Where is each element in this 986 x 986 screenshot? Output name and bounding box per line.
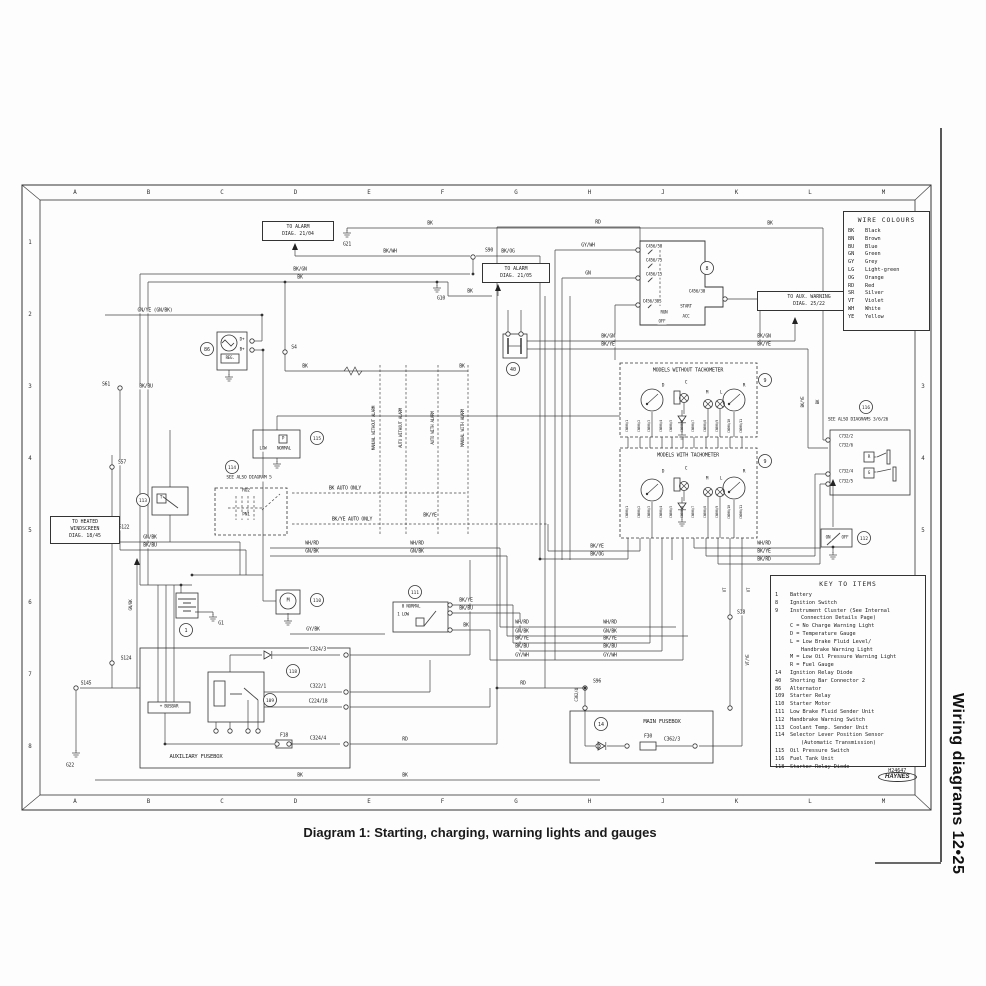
wire-label: VT	[723, 587, 727, 593]
connector-pin	[344, 653, 348, 657]
wire-label: S145	[80, 681, 93, 686]
wire-label: AUXILIARY FUSEBOX	[169, 754, 224, 760]
connector-pin	[214, 729, 218, 733]
grid-column-letter: H	[588, 799, 592, 805]
grid-column-letter: M	[882, 799, 886, 805]
grid-row-number: 6	[28, 600, 32, 606]
wire-colour-row: RDRed	[848, 283, 925, 291]
grid-row-number: 3	[921, 384, 925, 390]
junction-dot	[164, 743, 167, 746]
item-number: 40	[510, 367, 516, 373]
wire-label: WH/RD	[409, 541, 424, 546]
connector-pin	[636, 303, 640, 307]
item-number: 8	[705, 266, 708, 272]
wire-label: BK/YE	[514, 636, 529, 641]
wire-label: B+	[239, 348, 246, 353]
note-line: TO HEATED	[53, 519, 117, 526]
wire-label: S96	[592, 679, 602, 684]
wire-label: RO2	[241, 490, 251, 495]
grid-row-number: 4	[921, 456, 925, 462]
item-number: 112	[860, 536, 868, 542]
wire-label: BK/BU	[138, 384, 153, 389]
wire-label: C324/3	[309, 647, 327, 652]
key-item-row: 113Coolant Temp. Sender Unit	[775, 725, 921, 733]
wire-label: RD	[519, 681, 526, 686]
grid-column-letter: H	[588, 190, 592, 196]
wire-colours-legend: WIRE COLOURS BKBlackBNBrownBUBlueGNGreen…	[843, 211, 930, 331]
key-to-items-title: KEY TO ITEMS	[775, 581, 921, 588]
wire-label: BK	[401, 773, 408, 778]
wire-colour-row: WHWhite	[848, 306, 925, 314]
wire-label: C8006/3	[648, 419, 652, 433]
connector-pin	[583, 706, 587, 710]
connector-pin	[250, 348, 254, 352]
wire-label: MANUAL WITH ALARM	[461, 408, 465, 448]
wire-colour-row: BKBlack	[848, 228, 925, 236]
connector-pin	[275, 742, 279, 746]
resistor-icon	[674, 478, 680, 491]
wire-label: S90	[484, 248, 494, 253]
wire-label: GY/WH	[580, 243, 595, 248]
wire-label: RD	[401, 737, 408, 742]
wire-colour-row: LGLight-green	[848, 267, 925, 275]
wire-label: RUN	[660, 311, 669, 316]
grid-column-letter: C	[220, 799, 224, 805]
key-item-row: Connection Details Page)	[775, 615, 921, 623]
wire-label: RD	[594, 220, 601, 225]
connector-pin	[728, 615, 732, 619]
diagram-caption: Diagram 1: Starting, charging, warning l…	[0, 825, 960, 840]
wire-label: F18	[279, 733, 289, 738]
wire-label: C8006/8	[704, 419, 708, 433]
connector-pin	[250, 339, 254, 343]
component-box	[620, 448, 757, 538]
wire-label: G21	[342, 242, 352, 247]
component-box	[176, 593, 198, 618]
connector-pin	[287, 742, 291, 746]
grid-row-number: 3	[28, 384, 32, 390]
wire-label: BK AUTO ONLY	[328, 486, 362, 491]
wire-label: BK/BU	[458, 606, 473, 611]
component-box	[215, 488, 287, 535]
wire-label: BK/YE	[756, 549, 771, 554]
brand-logo: HAYNES	[878, 772, 917, 782]
wire-label: C8006/6	[681, 505, 685, 519]
wire-label: GY/WH	[602, 653, 617, 658]
connector-pin	[74, 686, 78, 690]
wire-label: GY/BK	[305, 627, 320, 632]
wiring-diagram-page: 8611311511411111011091181489940116112 BK…	[0, 0, 986, 986]
grid-column-letter: A	[73, 799, 77, 805]
wire-label: AUTO WITHOUT ALARM	[399, 407, 403, 449]
wire-colour-row: SRSilver	[848, 290, 925, 298]
wire-label: C362/4	[575, 687, 579, 702]
wire-colour-row: YEYellow	[848, 314, 925, 322]
key-item-row: 86Alternator	[775, 686, 921, 694]
wire-colours-rows: BKBlackBNBrownBUBlueGNGreenGYGreyLGLight…	[848, 228, 925, 322]
wire-label: MANUAL WITHOUT ALARM	[372, 405, 376, 451]
wire-label: G10	[436, 296, 446, 301]
wire-label: WH/RD	[602, 620, 617, 625]
grid-column-letter: M	[882, 190, 886, 196]
wire-label: BK	[766, 221, 773, 226]
wire-label: S18	[736, 610, 746, 615]
wire-label: C456/30	[688, 290, 706, 295]
grid-row-number: 7	[28, 672, 32, 678]
wire-colour-row: GNGreen	[848, 251, 925, 259]
item-number: 9	[763, 459, 766, 465]
connector-pin	[344, 705, 348, 709]
wire-label: SEE ALSO DIAGRAMS 3/6/26	[827, 419, 889, 424]
key-item-row: 14Ignition Relay Diode	[775, 670, 921, 678]
wire-label: REG.	[225, 356, 236, 360]
key-item-row: 110Starter Motor	[775, 701, 921, 709]
grid-column-letter: B	[147, 190, 151, 196]
connector-pin	[448, 611, 452, 615]
wire-label: BK/BU	[602, 644, 617, 649]
component-box	[208, 672, 264, 722]
wire-label: C8006/6	[681, 419, 685, 433]
wire-label: GN/YE (GN/BK)	[137, 308, 174, 313]
wire-label: S4	[290, 345, 297, 350]
wire-label: NORMAL	[276, 447, 292, 452]
wire-label: F30	[643, 734, 653, 739]
grid-column-letter: C	[220, 190, 224, 196]
grid-column-letter: L	[808, 190, 812, 196]
connector-pin	[826, 482, 830, 486]
key-item-row: (Automatic Transmission)	[775, 740, 921, 748]
component-box	[416, 618, 424, 626]
wire-label: R	[867, 455, 871, 459]
component-box	[830, 430, 910, 495]
key-item-row: R = Fuel Gauge	[775, 662, 921, 670]
wire-label: BK/YE	[589, 544, 604, 549]
wire-label: BK	[462, 623, 469, 628]
wire-label: C8006/2	[638, 505, 642, 519]
wire-label: BK/OG	[589, 552, 604, 557]
wire-label: D	[661, 385, 666, 390]
grid-row-number: 5	[921, 528, 925, 534]
wire-colour-row: GYGrey	[848, 259, 925, 267]
wire-label: R	[742, 471, 747, 476]
connector-pin	[448, 628, 452, 632]
wire-label: BK/BU	[514, 644, 529, 649]
wire-label: C8006/4	[660, 419, 664, 433]
wire-label: G1	[217, 621, 224, 626]
wire-label: C324/4	[309, 736, 327, 741]
wire-label: C8006/5	[670, 505, 674, 519]
wire-label: BK/YE	[801, 395, 805, 408]
wire-label: C8006/2	[638, 419, 642, 433]
gauge-icon	[723, 477, 745, 499]
key-to-items-rows: 1Battery8Ignition Switch9Instrument Clus…	[775, 592, 921, 771]
wire-label: BK/GN	[756, 334, 771, 339]
key-item-row: 40Shorting Bar Connector 2	[775, 678, 921, 686]
grid-column-letter: J	[661, 190, 665, 196]
wire-label: C8006/11	[740, 418, 744, 434]
wire-colour-row: VTViolet	[848, 298, 925, 306]
wire-label: BK/GN	[292, 267, 307, 272]
wire-label: L	[719, 477, 723, 482]
wire-label: BK	[296, 275, 303, 280]
component-box	[253, 430, 300, 458]
wire-label: 0 NORMAL	[401, 605, 422, 610]
wire-label: C8006/7	[692, 505, 696, 519]
connector-pin	[625, 744, 629, 748]
wire-label: C8006/10	[728, 504, 732, 520]
connector-pin	[118, 386, 122, 390]
wire-label: WH/RD	[756, 541, 771, 546]
grid-row-number: 2	[28, 312, 32, 318]
note-box: TO ALARMDIAG. 21/04	[262, 221, 334, 241]
note-line: DIAG. 21/05	[485, 273, 547, 280]
grid-column-letter: L	[808, 799, 812, 805]
gauge-icon	[641, 389, 663, 411]
wire-label: C732/5	[838, 480, 854, 485]
wire-label: PN1	[241, 514, 251, 519]
wire-label: BK	[301, 364, 308, 369]
item-number: 14	[598, 722, 604, 728]
grid-column-letter: A	[73, 190, 77, 196]
key-item-row: 8Ignition Switch	[775, 600, 921, 608]
wire-label: S124	[120, 656, 133, 661]
key-item-row: M = Low Oil Pressure Warning Light	[775, 654, 921, 662]
wire-label: C8006/8	[704, 505, 708, 519]
wire-label: S57	[117, 460, 127, 465]
note-line: WINDSCREEN	[53, 526, 117, 533]
grid-column-letter: G	[514, 190, 518, 196]
wire-colour-row: OGOrange	[848, 275, 925, 283]
wire-label: START	[679, 305, 693, 310]
grid-row-number: 4	[28, 456, 32, 462]
key-item-row: 111Low Brake Fluid Sender Unit	[775, 709, 921, 717]
connector-pin	[110, 661, 114, 665]
wire-label: BK/YE	[756, 342, 771, 347]
wire-label: C456/30S	[642, 300, 663, 305]
wire-label: S61	[101, 382, 111, 387]
resistor-icon	[674, 391, 680, 404]
wire-label: P	[281, 437, 285, 442]
wire-label: BK	[458, 364, 465, 369]
key-item-row: Handbrake Warning Light	[775, 647, 921, 655]
wire-label: C732/6	[838, 444, 854, 449]
wire-label: C8006/3	[648, 505, 652, 519]
wire-label: L	[719, 391, 723, 396]
note-line: TO ALARM	[265, 224, 331, 231]
key-to-items-legend: KEY TO ITEMS 1Battery8Ignition Switch9In…	[770, 575, 926, 767]
wire-label: WH/RD	[304, 541, 319, 546]
wire-label: LOW	[259, 447, 268, 452]
note-line: TO ALARM	[485, 266, 547, 273]
wire-label: BK/WH	[382, 249, 397, 254]
wire-label: BK	[426, 221, 433, 226]
connector-pin	[448, 603, 452, 607]
junction-dot	[539, 558, 542, 561]
wire-label: C8006/11	[740, 504, 744, 520]
wire-label: C322/1	[309, 684, 327, 689]
junction-dot	[261, 314, 264, 317]
note-line: DIAG. 18/45	[53, 533, 117, 540]
wire-label: C456/75	[645, 259, 663, 264]
item-number: 9	[763, 378, 766, 384]
grid-column-letter: D	[294, 799, 298, 805]
wire-label: GN/BK	[142, 535, 157, 540]
junction-dot	[496, 687, 499, 690]
wire-label: SEE ALSO DIAGRAM 5	[225, 477, 272, 482]
junction-dot	[262, 349, 265, 352]
junction-dot	[472, 273, 475, 276]
sidebar-page-label: Wiring diagrams 12•25	[948, 693, 966, 874]
grid-row-number: 1	[28, 240, 32, 246]
wire-label: AUTO WITH ALARM	[431, 410, 435, 445]
item-number: 113	[139, 498, 147, 504]
grid-column-letter: F	[441, 190, 445, 196]
wire-label: C456/50	[645, 245, 663, 250]
wire-label: GN/BK	[304, 549, 319, 554]
grid-column-letter: K	[735, 190, 739, 196]
wire-label: BK/RD	[756, 557, 771, 562]
ignition-switch-outline	[640, 241, 723, 325]
wire-label: C8006/4	[660, 505, 664, 519]
connector-pin	[723, 297, 727, 301]
wire-label: C732/2	[838, 435, 854, 440]
wire-colour-row: BUBlue	[848, 244, 925, 252]
wire-label: T	[159, 496, 163, 501]
note-box: TO ALARMDIAG. 21/05	[482, 263, 550, 283]
key-item-row: D = Temperature Gauge	[775, 631, 921, 639]
wire-label: BK	[296, 773, 303, 778]
wire-label: BK	[466, 289, 473, 294]
direction-arrow	[495, 284, 501, 291]
wire-label: C	[684, 382, 689, 387]
item-number: 111	[411, 590, 419, 596]
wire-label: BK/YE	[458, 598, 473, 603]
junction-dot	[436, 281, 439, 284]
wire-label: BK/YE AUTO ONLY	[331, 517, 373, 522]
junction-dot	[832, 546, 835, 549]
wire-label: C8006/7	[692, 419, 696, 433]
wire-label: C456/15	[645, 273, 663, 278]
wire-label: GN/BK	[409, 549, 424, 554]
component-box	[893, 467, 896, 481]
connector-pin	[246, 729, 250, 733]
wire-colour-row: BNBrown	[848, 236, 925, 244]
wire-label: C362/3	[663, 737, 681, 742]
connector-pin	[344, 690, 348, 694]
wire-label: BK/YE	[600, 342, 615, 347]
wire-label: BK/OG	[500, 249, 515, 254]
grid-column-letter: K	[735, 799, 739, 805]
wire-label: C224/18	[308, 699, 329, 704]
item-number: 116	[862, 405, 870, 411]
key-item-row: 109Starter Relay	[775, 693, 921, 701]
wire-label: C732/4	[838, 470, 854, 475]
grid-column-letter: E	[367, 799, 371, 805]
wire-label: OFF	[841, 536, 850, 541]
alternator-icon	[221, 335, 237, 351]
grid-column-letter: B	[147, 799, 151, 805]
note-box: TO HEATEDWINDSCREENDIAG. 18/45	[50, 516, 120, 544]
key-item-row: L = Low Brake Fluid Level/	[775, 639, 921, 647]
wire-label: C8006/1	[626, 505, 630, 519]
wire-label: MODELS WITH TACHOMETER	[656, 453, 720, 459]
junction-dot	[180, 584, 183, 587]
component-box	[887, 450, 890, 464]
wire-label: BK/YE	[602, 636, 617, 641]
key-item-row: 116Fuel Tank Unit	[775, 756, 921, 764]
wire-label: C8006/9	[716, 505, 720, 519]
wire-label: GN/BK	[602, 629, 617, 634]
grid-row-number: 8	[28, 744, 32, 750]
direction-arrow	[830, 479, 836, 486]
wire-label: M	[705, 391, 709, 396]
item-number: 110	[313, 598, 321, 604]
wire-label: VT/YE	[746, 653, 750, 666]
gauge-icon	[641, 479, 663, 501]
wire-label: C8006/5	[670, 419, 674, 433]
wire-label: BK/BU	[142, 543, 157, 548]
note-line: DIAG. 21/04	[265, 231, 331, 238]
wire-label: GN/BK	[129, 598, 133, 611]
connector-pin	[471, 255, 475, 259]
wire-label: OFF	[658, 320, 667, 325]
connector-pin	[506, 332, 510, 336]
wire-label: BK/GN	[600, 334, 615, 339]
direction-arrow	[134, 558, 140, 565]
connector-pin	[728, 706, 732, 710]
diode-icon	[264, 651, 271, 659]
wire-label: R	[742, 385, 747, 390]
key-item-row: 115Oil Pressure Switch	[775, 748, 921, 756]
wire-label: VT	[747, 587, 751, 593]
wire-label: D+	[239, 338, 246, 343]
wire-label: C	[684, 468, 689, 473]
wire-label: M	[286, 598, 291, 604]
direction-arrow	[792, 317, 798, 324]
wire-label: MAIN FUSEBOX	[642, 719, 681, 725]
wire-label: G22	[65, 763, 75, 768]
connector-pin	[344, 742, 348, 746]
wire-label: WH/RD	[514, 620, 529, 625]
item-number: 1	[184, 628, 187, 634]
connector-pin	[693, 744, 697, 748]
connector-pin	[228, 729, 232, 733]
reference-block: H24647 HAYNES	[878, 768, 917, 780]
connector-pin	[636, 248, 640, 252]
wire-label: BK/YE	[422, 513, 437, 518]
wire-label: GN/BK	[514, 629, 529, 634]
wire-label: MODELS WITHOUT TACHOMETER	[652, 368, 724, 374]
grid-row-number: 5	[28, 528, 32, 534]
item-number: 115	[313, 436, 321, 442]
grid-column-letter: J	[661, 799, 665, 805]
wire-colours-title: WIRE COLOURS	[848, 217, 925, 224]
component-box	[640, 742, 656, 750]
key-item-row: 114Selector Lever Position Sensor	[775, 732, 921, 740]
key-item-row: C = No Charge Warning Light	[775, 623, 921, 631]
item-number: 118	[289, 669, 297, 675]
connector-pin	[636, 276, 640, 280]
wire-label: C8006/1	[626, 419, 630, 433]
grid-column-letter: G	[514, 799, 518, 805]
alternator-wave-icon	[222, 340, 234, 346]
connector-pin	[256, 729, 260, 733]
wire-label: BK	[816, 399, 820, 405]
wire-label: M	[705, 477, 709, 482]
item-number: 86	[204, 347, 210, 353]
wire-label: C8006/10	[728, 418, 732, 434]
junction-dot	[584, 687, 587, 690]
